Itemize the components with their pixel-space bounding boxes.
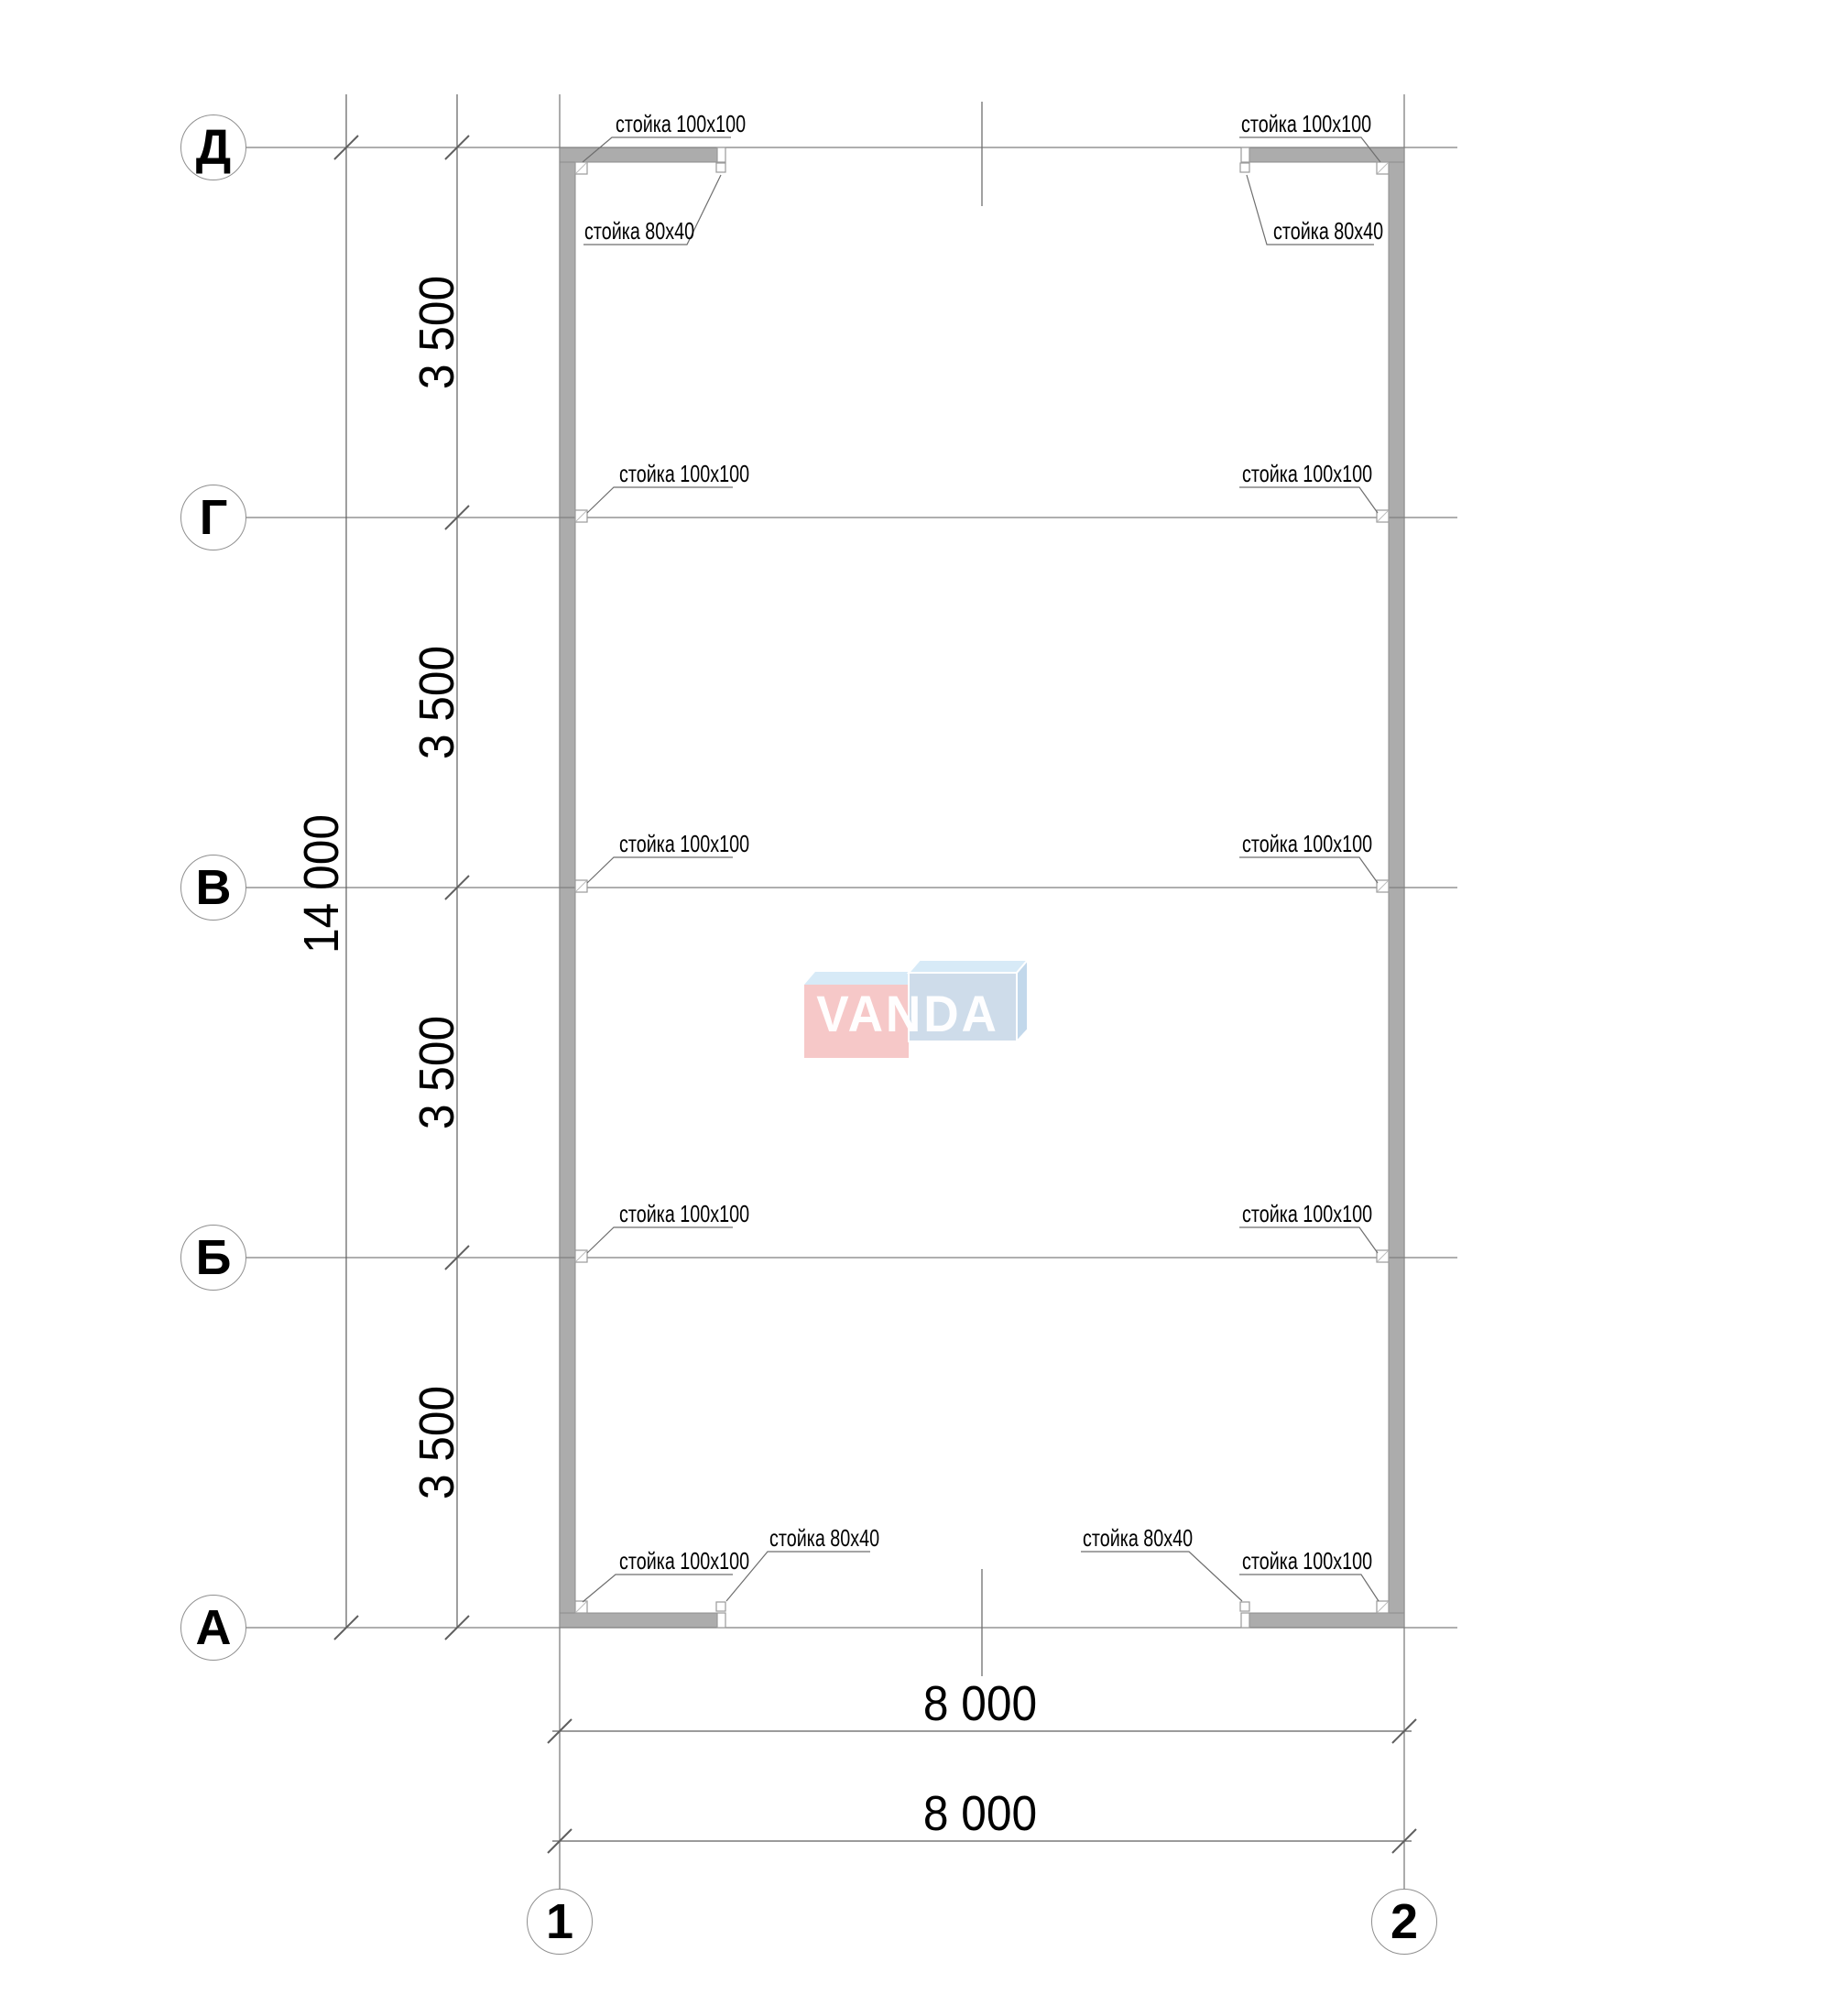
axis-label: Б: [196, 1233, 232, 1282]
axis-bubble-row-g: Г: [180, 485, 246, 550]
wall-top-left-segment: [560, 147, 717, 162]
dim-bay-height: 3 500: [412, 276, 462, 389]
dim-width-lower: 8 000: [923, 1789, 1037, 1838]
axis-label: В: [196, 863, 232, 912]
axis-label: 2: [1390, 1897, 1418, 1946]
post-label-right-g-100x100: стойка 100x100: [1242, 461, 1372, 486]
axis-bubble-col-2: 2: [1371, 1889, 1437, 1955]
axis-bubble-row-a: А: [180, 1595, 246, 1661]
dimension-lines: [346, 94, 1412, 1841]
post-80x40: [1241, 147, 1249, 162]
post-label-right-v-100x100: стойка 100x100: [1242, 831, 1372, 856]
axis-label: Г: [200, 493, 228, 542]
post-label-bottom-left-80x40: стойка 80x40: [769, 1525, 879, 1551]
vanda-watermark: VANDA: [816, 988, 998, 1040]
post-label-left-b-100x100: стойка 100x100: [619, 1201, 749, 1226]
post-label-top-right-100x100: стойка 100x100: [1241, 111, 1371, 136]
dim-overall-height: 14 000: [297, 814, 346, 954]
wall-bottom-right-segment: [1249, 1613, 1404, 1628]
post-80x40-cap: [716, 1602, 725, 1611]
axis-bubble-row-b: Б: [180, 1225, 246, 1291]
axis-bubble-row-d: Д: [180, 114, 246, 180]
axis-label: Д: [196, 123, 231, 172]
dim-bay-height: 3 500: [412, 1016, 462, 1129]
post-80x40-cap: [1240, 1602, 1249, 1611]
axis-bubble-col-1: 1: [527, 1889, 593, 1955]
dim-bay-height: 3 500: [412, 1386, 462, 1499]
floor-plan-canvas: Д Г В Б А 1 2 14 000 3 500 3 500 3 500 3…: [0, 0, 1832, 2016]
axis-bubble-row-v: В: [180, 855, 246, 921]
axis-label: 1: [546, 1897, 573, 1946]
wall-top-right-segment: [1249, 147, 1404, 162]
post-label-bottom-right-100x100: стойка 100x100: [1242, 1548, 1372, 1574]
post-label-left-v-100x100: стойка 100x100: [619, 831, 749, 856]
post-80x40-cap: [716, 163, 725, 172]
leader-lines: [583, 137, 1380, 1602]
post-label-right-b-100x100: стойка 100x100: [1242, 1201, 1372, 1226]
post-label-left-g-100x100: стойка 100x100: [619, 461, 749, 486]
post-80x40-cap: [1240, 163, 1249, 172]
post-label-bottom-right-80x40: стойка 80x40: [1083, 1525, 1193, 1551]
post-label-top-left-100x100: стойка 100x100: [616, 111, 746, 136]
post-80x40: [1241, 1613, 1249, 1628]
dim-bay-height: 3 500: [412, 646, 462, 759]
post-label-top-left-80x40: стойка 80x40: [584, 218, 694, 244]
post-label-top-right-80x40: стойка 80x40: [1273, 218, 1383, 244]
wall-bottom-left-segment: [560, 1613, 717, 1628]
dim-width-upper: 8 000: [923, 1679, 1037, 1728]
post-label-bottom-left-100x100: стойка 100x100: [619, 1548, 749, 1574]
post-80x40: [717, 147, 725, 162]
axis-label: А: [196, 1603, 232, 1652]
post-80x40: [717, 1613, 725, 1628]
